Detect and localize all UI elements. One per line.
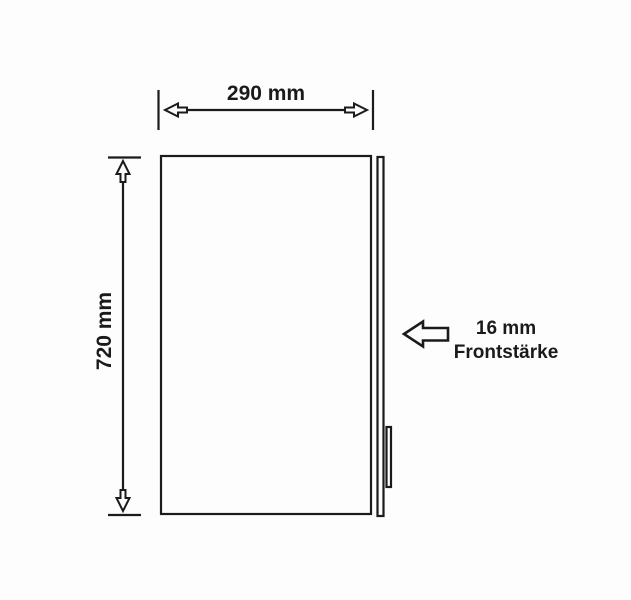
height-dimension-label: 720 mm [93, 292, 116, 370]
dimension-diagram: 290 mm 720 mm 16 mm Frontstärke [0, 0, 631, 600]
width-dimension: 290 mm [159, 82, 374, 130]
thickness-annotation: 16 mm Frontstärke [404, 318, 558, 363]
door-front-face [161, 156, 371, 514]
thickness-label-line2: Frontstärke [454, 342, 559, 363]
arrow-left-icon [165, 104, 187, 117]
thickness-arrow-left-icon [404, 322, 448, 347]
width-dimension-label: 290 mm [227, 82, 305, 105]
thickness-label-line1: 16 mm [476, 318, 536, 339]
door-panel [161, 156, 391, 516]
arrow-up-icon [117, 161, 130, 182]
height-dimension: 720 mm [93, 158, 141, 516]
door-edge-strip [378, 157, 384, 516]
door-handle [387, 427, 392, 487]
arrow-right-icon [345, 104, 367, 117]
arrow-down-icon [117, 490, 130, 511]
